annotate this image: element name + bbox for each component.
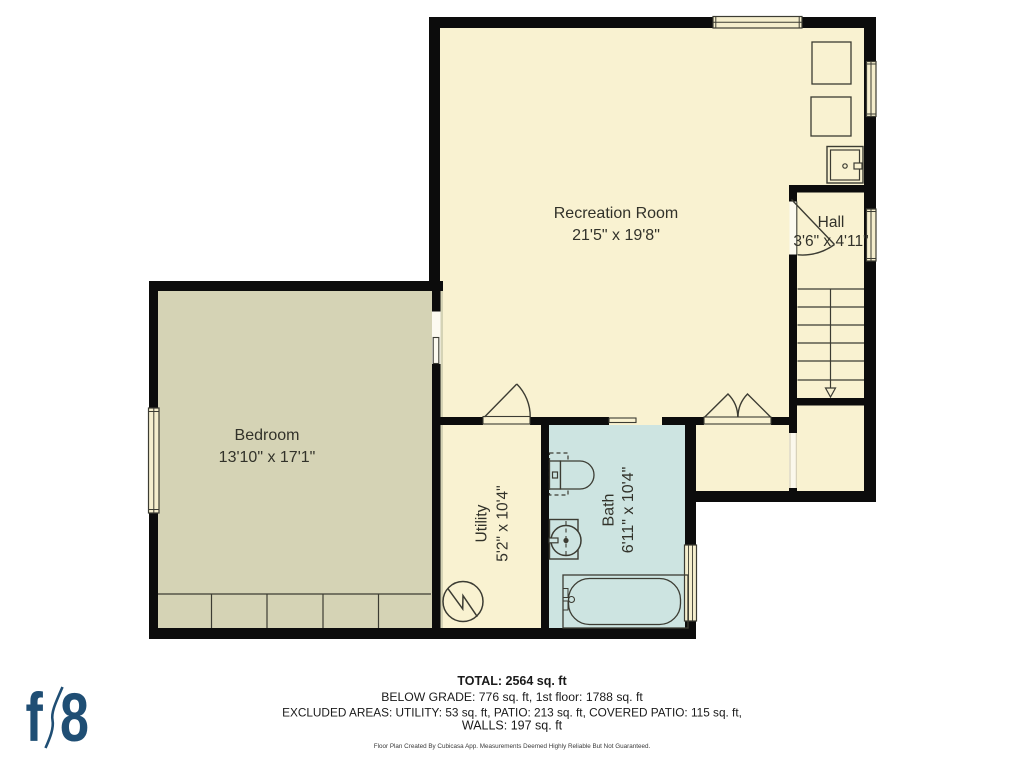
svg-text:TOTAL: 2564 sq. ft: TOTAL: 2564 sq. ft [457, 674, 567, 688]
svg-text:Utility: Utility [474, 504, 491, 542]
svg-text:Bath: Bath [601, 494, 618, 527]
svg-text:5'2" x 10'4": 5'2" x 10'4" [495, 485, 512, 561]
svg-text:8: 8 [60, 679, 89, 756]
svg-text:Floor Plan Created By Cubicasa: Floor Plan Created By Cubicasa App. Meas… [374, 743, 651, 750]
svg-text:Bedroom: Bedroom [235, 427, 300, 444]
svg-text:EXCLUDED AREAS: UTILITY: 53 sq: EXCLUDED AREAS: UTILITY: 53 sq. ft, PATI… [282, 706, 742, 720]
svg-text:3'6" x 4'11": 3'6" x 4'11" [793, 233, 868, 250]
svg-text:BELOW GRADE: 776 sq. ft, 1st f: BELOW GRADE: 776 sq. ft, 1st floor: 1788… [381, 690, 643, 704]
svg-text:21'5" x 19'8": 21'5" x 19'8" [572, 227, 660, 244]
svg-text:f: f [26, 679, 44, 756]
svg-text:WALLS: 197 sq. ft: WALLS: 197 sq. ft [462, 719, 563, 733]
svg-text:Hall: Hall [818, 214, 845, 231]
svg-text:6'11" x 10'4": 6'11" x 10'4" [620, 467, 637, 554]
svg-text:Recreation Room: Recreation Room [554, 205, 679, 222]
svg-text:13'10" x 17'1": 13'10" x 17'1" [219, 449, 316, 466]
